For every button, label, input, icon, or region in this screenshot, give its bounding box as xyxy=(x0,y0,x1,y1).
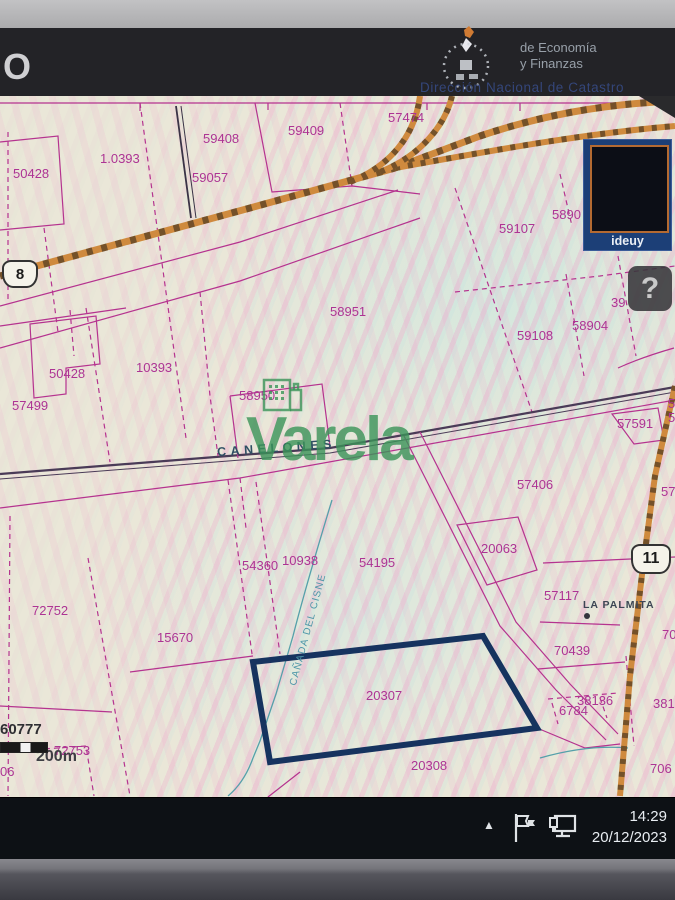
parcel-label: 57406 xyxy=(517,477,553,492)
parcel-label-cut: 5 xyxy=(668,396,675,411)
clock-date: 20/12/2023 xyxy=(592,827,667,848)
parcel-label: 6784 xyxy=(559,703,588,718)
parcel-label: 50428 xyxy=(49,366,85,381)
parcel-label: 57591 xyxy=(617,416,653,431)
scale-bar xyxy=(0,742,48,753)
clock-time: 14:29 xyxy=(592,806,667,827)
tray-expand-icon[interactable]: ▲ xyxy=(483,818,495,832)
ideuy-label: ideuy xyxy=(584,234,671,248)
la-palmita-dot xyxy=(584,613,590,619)
parcel-label: 10393 xyxy=(136,360,172,375)
ministry-name: de Economía y Finanzas xyxy=(520,40,597,72)
parcel-label: 39 xyxy=(611,295,625,310)
parcel-label: 70439 xyxy=(554,643,590,658)
parcel-label-cut: 70 xyxy=(662,627,675,642)
parcel-label: 1.0393 xyxy=(100,151,140,166)
parcel-label: 57117 xyxy=(544,588,579,603)
parcel-label: 15670 xyxy=(157,630,193,645)
parcel-label: 58951 xyxy=(330,304,366,319)
parcel-label: 59409 xyxy=(288,123,324,138)
ideuy-widget[interactable]: ideuy xyxy=(583,139,672,251)
parcel-label: 50428 xyxy=(13,166,49,181)
parcel-label: 06 xyxy=(0,764,14,779)
parcel-label: 72752 xyxy=(32,603,68,618)
catastro-subtitle: Dirección Nacional de Catastro xyxy=(420,80,624,95)
ministry-line2: y Finanzas xyxy=(520,56,597,72)
parcel-label: 20063 xyxy=(481,541,517,556)
clock[interactable]: 14:29 20/12/2023 xyxy=(592,806,667,848)
place-label-la-palmita: LA PALMITA xyxy=(583,599,655,611)
photo-corner-artifact xyxy=(639,96,675,118)
ministry-line1: de Economía xyxy=(520,40,597,56)
parcel-label: 59057 xyxy=(192,170,228,185)
parcel-label-cut: 57 xyxy=(661,484,675,499)
route-11-shield: 11 xyxy=(631,544,671,574)
parcel-label: 59108 xyxy=(517,328,553,343)
header-partial-title: O xyxy=(3,46,31,88)
parcel-label: 5890 xyxy=(552,207,581,222)
help-button[interactable]: ? xyxy=(628,266,672,311)
parcel-label: 59408 xyxy=(203,131,239,146)
parcel-label-highlighted: 20307 xyxy=(366,688,402,703)
parcel-label-cut: 381 xyxy=(653,696,675,711)
parcel-label: 54195 xyxy=(359,555,395,570)
parcel-label-cut: 5 xyxy=(668,410,675,425)
parcel-label: 10938 xyxy=(282,553,318,568)
parcel-label: 57499 xyxy=(12,398,48,413)
parcel-label-cut: 706 xyxy=(650,761,672,776)
flag-icon[interactable] xyxy=(512,812,538,844)
monitor-bezel-top xyxy=(0,0,675,28)
parcel-label: 59107 xyxy=(499,221,535,236)
parcel-label: 20308 xyxy=(411,758,447,773)
parcel-label: 54360 xyxy=(242,558,278,573)
cadastral-map[interactable]: 50428 1.0393 59408 59409 57474 59057 591… xyxy=(0,96,675,797)
app-header: O de Economía y Finanzas Dirección Nacio… xyxy=(0,28,675,96)
ideuy-thumbnail[interactable] xyxy=(590,145,669,233)
monitor-bezel-bottom xyxy=(0,858,675,900)
parcel-label: 58904 xyxy=(572,318,608,333)
route-8-shield: 8 xyxy=(2,260,38,288)
taskbar[interactable]: ▲ 14:29 20/12/2023 xyxy=(0,797,675,859)
parcel-label-bold: 60777 xyxy=(0,721,42,738)
parcel-label: 57474 xyxy=(388,110,424,125)
network-icon[interactable] xyxy=(548,812,578,846)
screen-photo: { "header": { "partial_title": "O", "min… xyxy=(0,0,675,900)
varela-watermark: Varela xyxy=(246,404,411,475)
